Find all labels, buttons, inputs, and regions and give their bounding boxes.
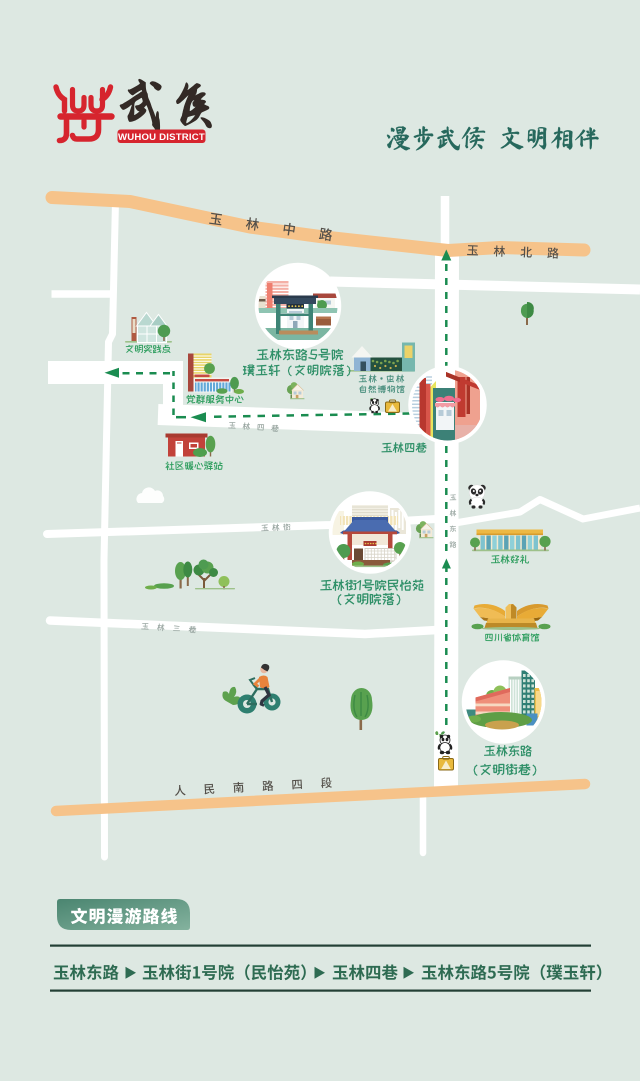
svg-text:WUHOU DISTRICT: WUHOU DISTRICT (118, 132, 205, 143)
